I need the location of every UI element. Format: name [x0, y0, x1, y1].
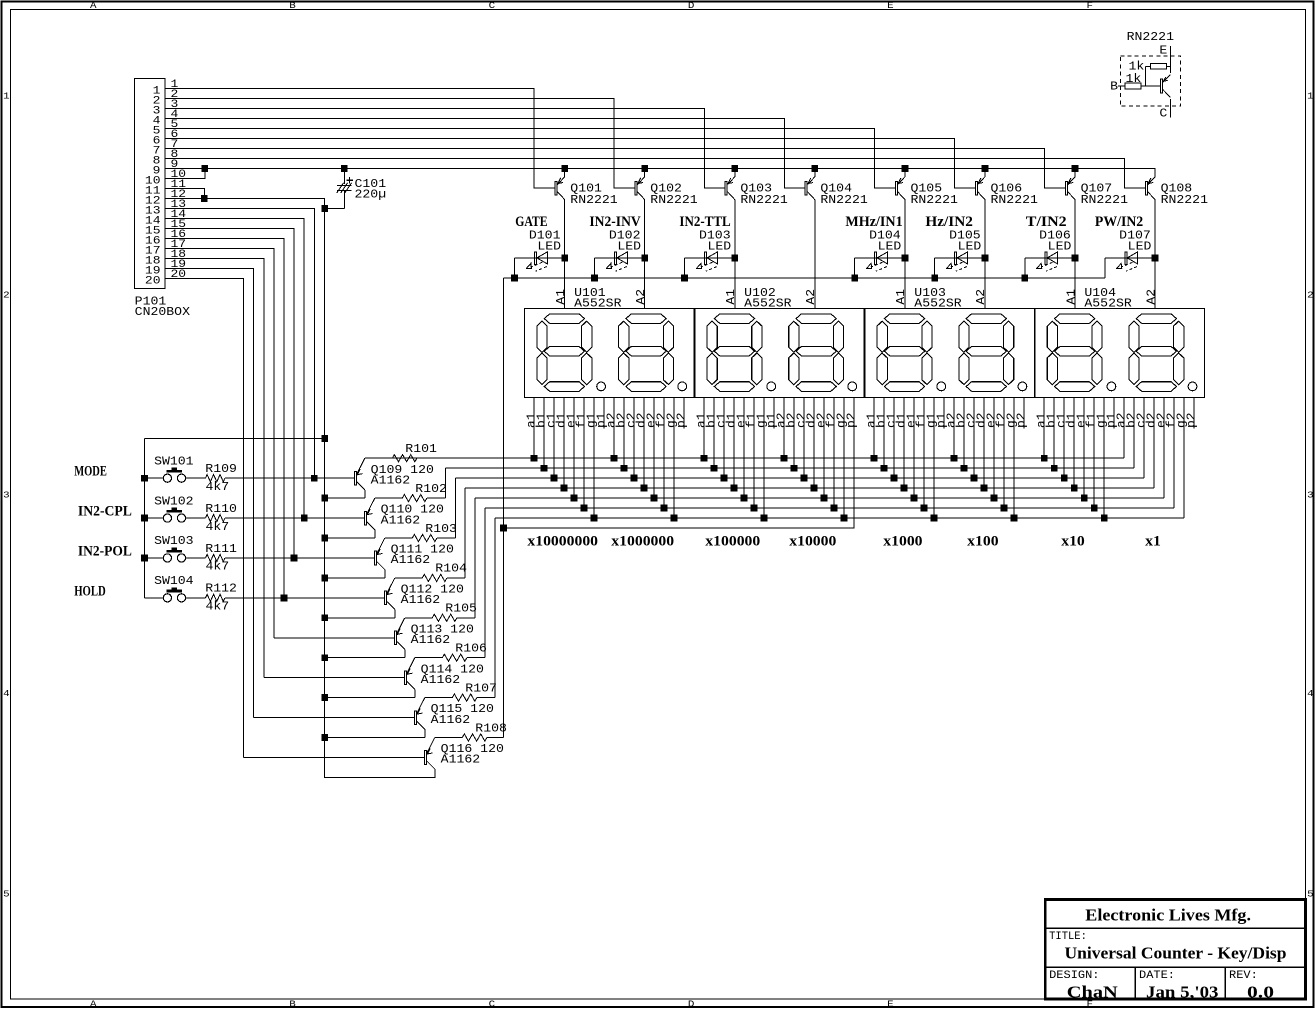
svg-text:B: B	[289, 0, 296, 11]
svg-text:MODE: MODE	[74, 464, 107, 480]
svg-text:x1000000: x1000000	[611, 534, 674, 550]
svg-text:R103: R103	[425, 522, 457, 536]
svg-text:GATE: GATE	[515, 214, 547, 230]
svg-text:A1: A1	[554, 289, 568, 305]
svg-text:A1162: A1162	[391, 553, 431, 567]
svg-text:4k7: 4k7	[206, 520, 230, 534]
svg-text:IN2-TTL: IN2-TTL	[679, 214, 730, 230]
svg-text:Hz/IN2: Hz/IN2	[925, 214, 973, 230]
svg-text:Electronic Lives Mfg.: Electronic Lives Mfg.	[1085, 906, 1251, 925]
svg-text:0.0: 0.0	[1247, 982, 1274, 1001]
svg-text:R109: R109	[205, 462, 237, 476]
svg-text:A1: A1	[894, 289, 908, 305]
svg-text:D: D	[688, 999, 695, 1009]
svg-text:A2: A2	[1144, 289, 1158, 305]
svg-text:4: 4	[1307, 688, 1314, 699]
svg-text:LED: LED	[878, 240, 902, 254]
svg-text:B: B	[1110, 80, 1118, 94]
svg-text:SW104: SW104	[154, 574, 194, 588]
svg-text:RN2221: RN2221	[650, 193, 697, 207]
svg-text:C: C	[489, 999, 496, 1009]
svg-text:LED: LED	[537, 240, 561, 254]
svg-text:x10000000: x10000000	[527, 534, 598, 550]
svg-text:LED: LED	[708, 240, 732, 254]
svg-text:RN2221: RN2221	[1161, 193, 1208, 207]
svg-text:A1162: A1162	[401, 593, 441, 607]
svg-text:DATE:: DATE:	[1139, 970, 1175, 982]
svg-text:x10000: x10000	[789, 534, 836, 550]
svg-text:Universal Counter - Key/Disp: Universal Counter - Key/Disp	[1065, 943, 1287, 962]
svg-text:CN20BOX: CN20BOX	[135, 305, 190, 319]
svg-text:B: B	[289, 999, 296, 1009]
svg-text:x1000: x1000	[883, 534, 922, 550]
svg-text:x100: x100	[967, 534, 998, 550]
svg-text:LED: LED	[1128, 240, 1152, 254]
svg-text:A552SR: A552SR	[1084, 297, 1131, 311]
svg-text:A1162: A1162	[431, 713, 471, 727]
svg-text:4k7: 4k7	[206, 600, 230, 614]
svg-text:R105: R105	[445, 602, 477, 616]
svg-text:IN2-INV: IN2-INV	[589, 214, 640, 230]
svg-text:REV:: REV:	[1229, 970, 1258, 982]
svg-text:RN2221: RN2221	[1081, 193, 1128, 207]
svg-text:5: 5	[1307, 889, 1314, 900]
svg-text:SW101: SW101	[154, 454, 194, 468]
svg-text:5: 5	[3, 889, 10, 900]
svg-text:C: C	[489, 0, 496, 11]
svg-text:x100000: x100000	[705, 534, 760, 550]
svg-text:p2: p2	[844, 412, 858, 428]
svg-text:20: 20	[171, 269, 187, 281]
svg-text:PW/IN2: PW/IN2	[1095, 214, 1143, 230]
svg-text:D: D	[688, 0, 695, 11]
svg-text:LED: LED	[958, 240, 982, 254]
svg-text:MHz/IN1: MHz/IN1	[845, 214, 902, 230]
svg-text:HOLD: HOLD	[74, 583, 106, 599]
svg-text:4: 4	[3, 688, 10, 699]
svg-text:F: F	[1087, 0, 1094, 11]
svg-text:x10: x10	[1061, 534, 1085, 550]
svg-text:RN2221: RN2221	[1127, 30, 1174, 44]
svg-text:p2: p2	[1015, 412, 1029, 428]
svg-text:2: 2	[1307, 289, 1314, 300]
svg-text:A1162: A1162	[411, 633, 451, 647]
svg-text:R112: R112	[205, 582, 237, 596]
svg-text:R106: R106	[455, 642, 487, 656]
svg-text:p2: p2	[674, 412, 688, 428]
svg-text:T/IN2: T/IN2	[1026, 214, 1067, 230]
svg-text:A1162: A1162	[441, 753, 481, 767]
svg-text:4k7: 4k7	[206, 480, 230, 494]
svg-text:LED: LED	[1048, 240, 1072, 254]
svg-text:RN2221: RN2221	[820, 193, 867, 207]
svg-text:A: A	[90, 999, 97, 1009]
svg-text:SW103: SW103	[154, 534, 194, 548]
svg-text:A552SR: A552SR	[574, 297, 621, 311]
svg-text:E: E	[887, 999, 894, 1009]
svg-text:C: C	[1159, 107, 1167, 121]
svg-text:R110: R110	[205, 502, 237, 516]
svg-text:A1162: A1162	[371, 473, 411, 487]
svg-text:220µ: 220µ	[355, 188, 387, 202]
svg-text:R108: R108	[475, 721, 507, 735]
svg-text:x1: x1	[1145, 534, 1161, 550]
svg-text:A552SR: A552SR	[914, 297, 961, 311]
svg-text:1: 1	[3, 91, 10, 102]
svg-text:RN2221: RN2221	[570, 193, 617, 207]
svg-text:2: 2	[3, 289, 10, 300]
svg-text:R111: R111	[205, 542, 237, 556]
svg-text:DESIGN:: DESIGN:	[1049, 970, 1099, 982]
svg-text:IN2-POL: IN2-POL	[78, 543, 132, 559]
svg-text:ChaN: ChaN	[1067, 982, 1119, 1001]
svg-text:R102: R102	[415, 482, 447, 496]
svg-text:A2: A2	[804, 289, 818, 305]
svg-text:RN2221: RN2221	[740, 193, 787, 207]
svg-text:R101: R101	[405, 442, 437, 456]
svg-text:RN2221: RN2221	[991, 193, 1038, 207]
svg-text:4k7: 4k7	[206, 560, 230, 574]
svg-text:A2: A2	[634, 289, 648, 305]
svg-text:E: E	[1159, 44, 1167, 58]
svg-text:A2: A2	[974, 289, 988, 305]
svg-text:p2: p2	[1185, 412, 1199, 428]
svg-text:1k: 1k	[1126, 72, 1142, 86]
svg-text:R104: R104	[435, 562, 467, 576]
svg-text:A: A	[90, 0, 97, 11]
svg-text:IN2-CPL: IN2-CPL	[78, 503, 132, 519]
svg-text:SW102: SW102	[154, 494, 194, 508]
svg-text:TITLE:: TITLE:	[1049, 931, 1087, 943]
svg-text:A552SR: A552SR	[744, 297, 791, 311]
svg-text:A1162: A1162	[381, 513, 421, 527]
svg-text:A1162: A1162	[421, 673, 461, 687]
svg-text:RN2221: RN2221	[911, 193, 958, 207]
svg-text:20: 20	[145, 275, 161, 287]
svg-text:3: 3	[3, 490, 10, 501]
svg-text:Jan 5,'03: Jan 5,'03	[1146, 982, 1219, 1001]
svg-text:3: 3	[1307, 490, 1314, 501]
svg-text:LED: LED	[617, 240, 641, 254]
svg-text:A1: A1	[1064, 289, 1078, 305]
svg-text:E: E	[887, 0, 894, 11]
svg-text:A1: A1	[724, 289, 738, 305]
svg-text:1: 1	[1307, 91, 1314, 102]
svg-text:R107: R107	[465, 681, 497, 695]
